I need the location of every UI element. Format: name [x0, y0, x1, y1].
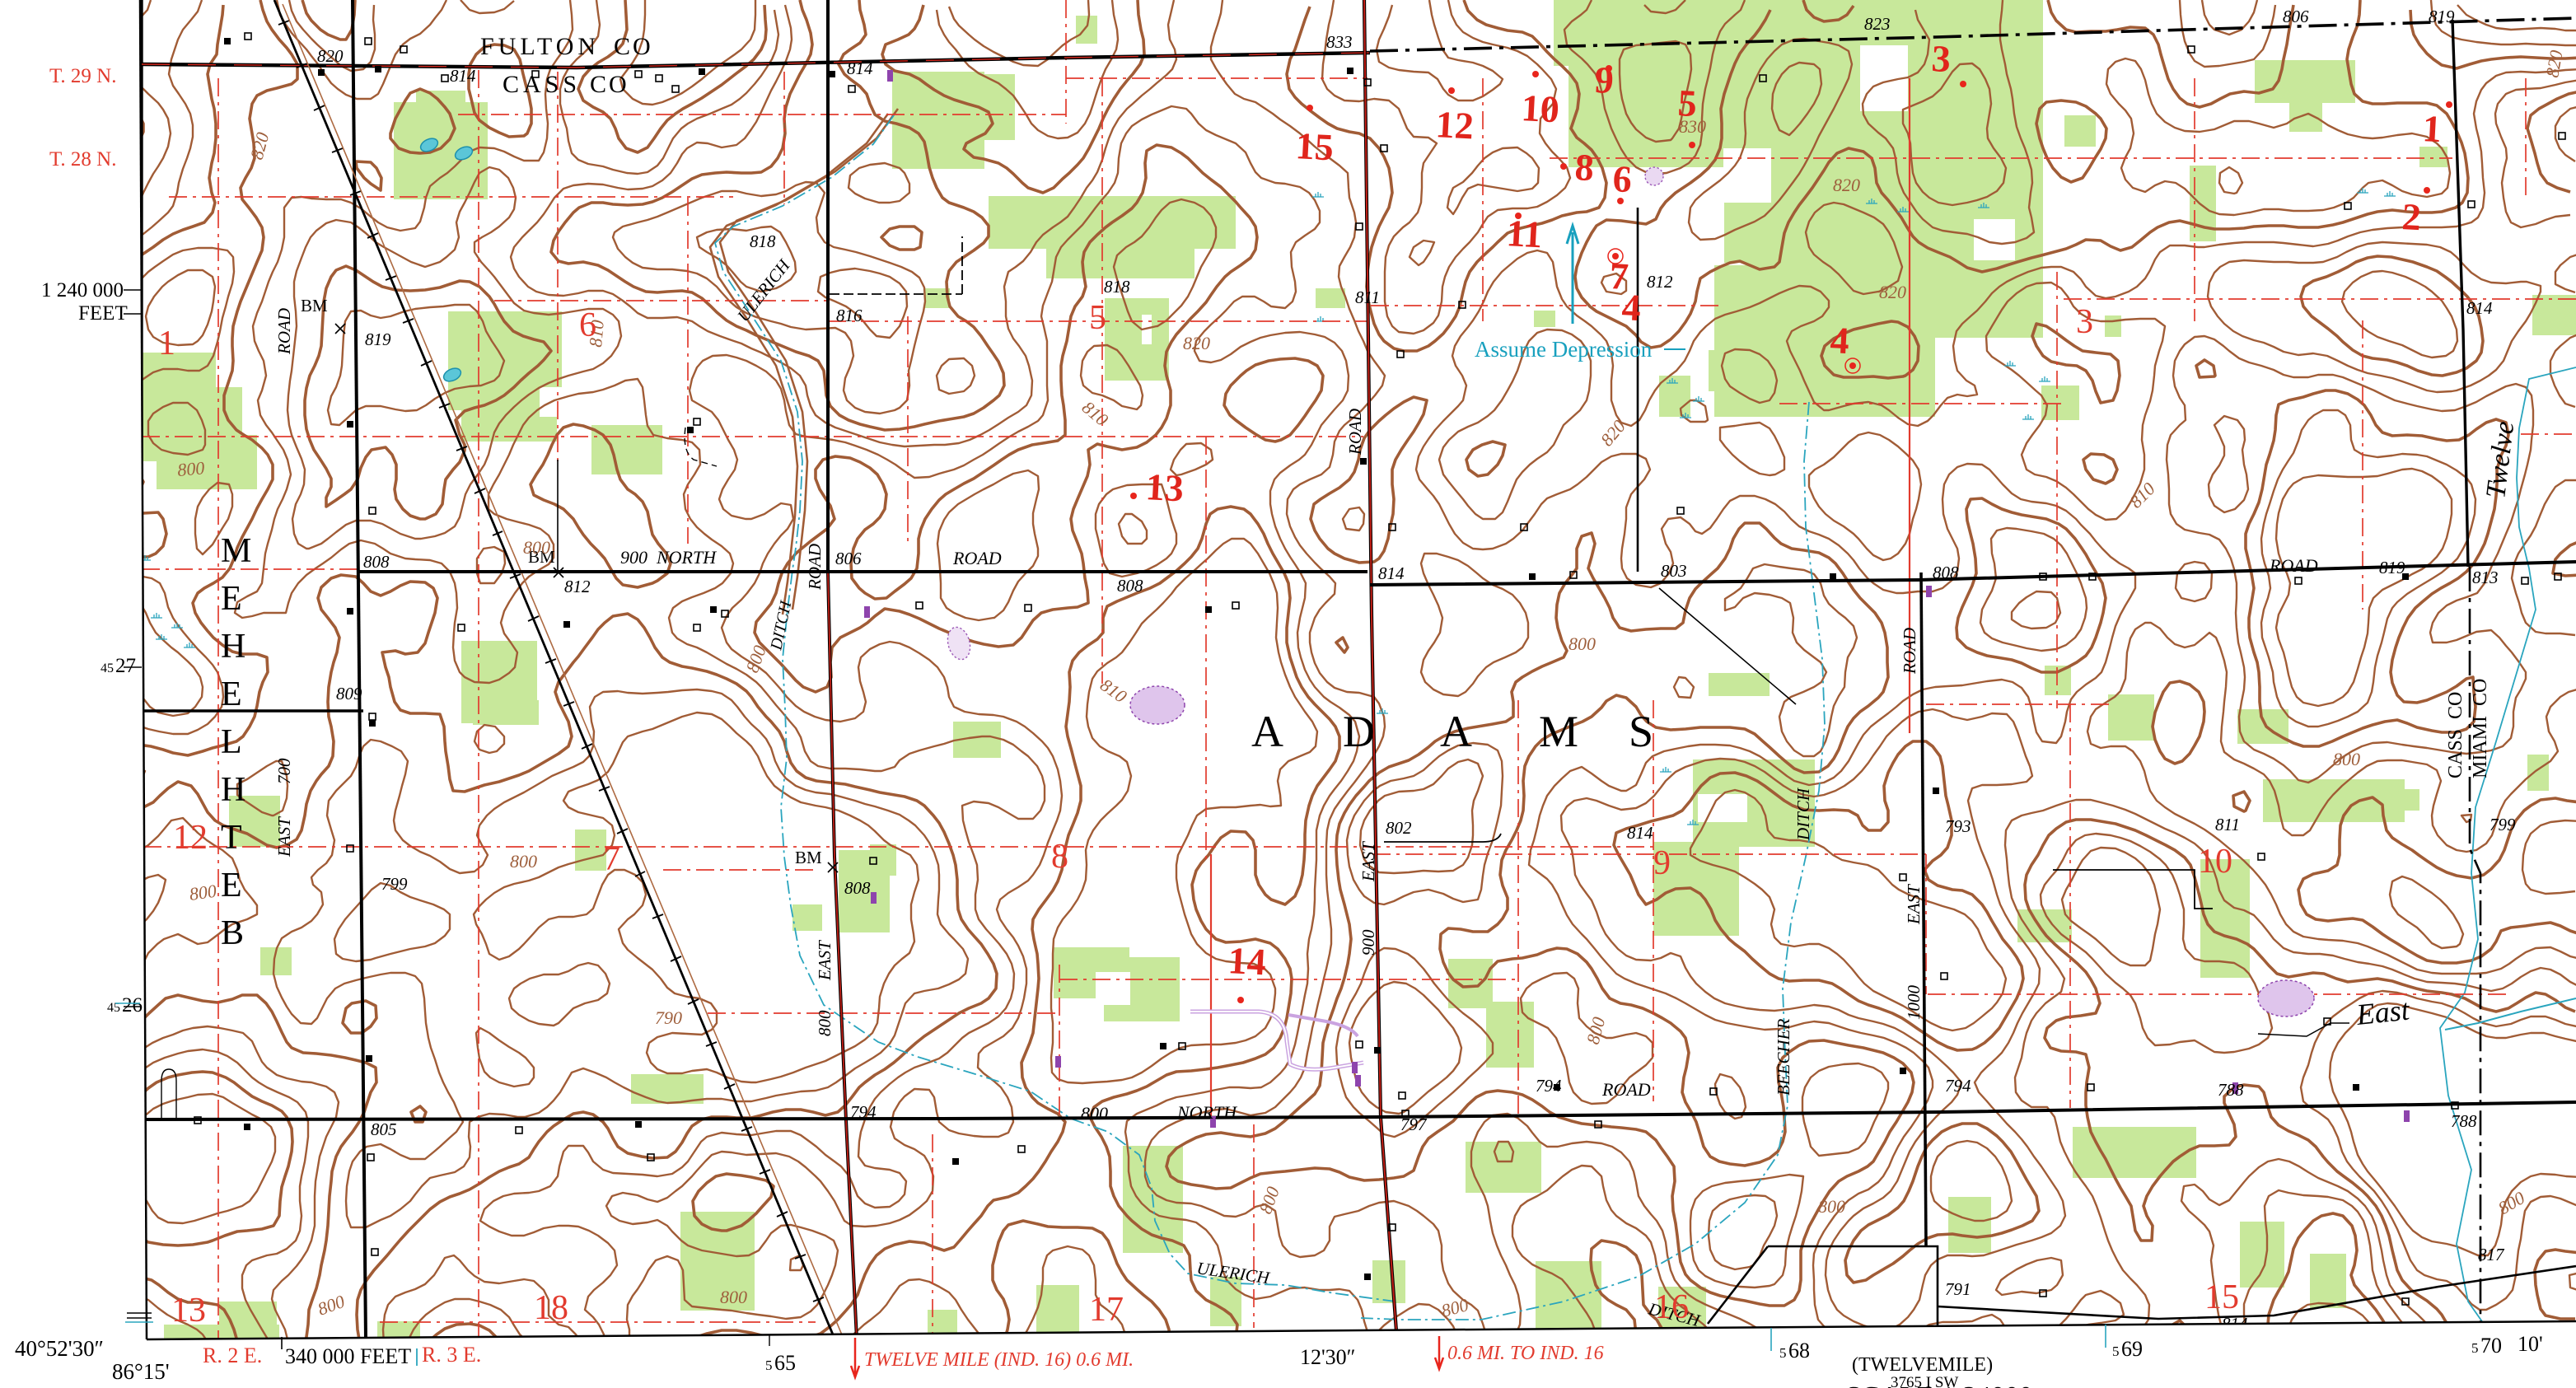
svg-text:ROAD: ROAD	[1345, 409, 1365, 456]
svg-text:806: 806	[835, 549, 862, 568]
svg-text:18: 18	[534, 1289, 568, 1327]
svg-text:819: 819	[2429, 7, 2455, 26]
svg-text:811: 811	[2215, 815, 2240, 834]
svg-text:799: 799	[2490, 815, 2516, 834]
svg-text:BEECHER: BEECHER	[1774, 1019, 1793, 1096]
svg-text:5: 5	[765, 1358, 773, 1373]
svg-text:ROAD: ROAD	[2269, 555, 2318, 576]
svg-text:9: 9	[1653, 844, 1671, 882]
svg-text:S: S	[1629, 707, 1653, 756]
svg-text:ROAD: ROAD	[274, 308, 294, 355]
svg-text:812: 812	[1647, 272, 1673, 292]
svg-text:NORTH: NORTH	[1176, 1102, 1237, 1123]
svg-text:12: 12	[1434, 103, 1475, 147]
svg-text:FEET: FEET	[78, 302, 128, 325]
svg-text:794: 794	[850, 1102, 877, 1122]
svg-text:MIAMI CO: MIAMI CO	[2470, 679, 2491, 778]
svg-text:809: 809	[336, 684, 362, 703]
svg-text:808: 808	[844, 878, 871, 898]
svg-text:814: 814	[847, 58, 873, 78]
svg-text:45: 45	[101, 661, 114, 675]
svg-text:13: 13	[171, 1292, 206, 1330]
svg-text:ROAD: ROAD	[1601, 1079, 1651, 1100]
svg-text:A: A	[1251, 707, 1283, 756]
svg-text:823: 823	[1864, 14, 1891, 34]
svg-text:816: 816	[836, 306, 863, 325]
svg-text:820: 820	[1879, 282, 1906, 302]
svg-text:813: 813	[2472, 568, 2499, 587]
svg-text:4: 4	[1829, 319, 1850, 362]
svg-text:ROAD: ROAD	[952, 548, 1002, 568]
svg-text:900 NORTH: 900 NORTH	[620, 547, 717, 568]
svg-text:833: 833	[1326, 32, 1353, 52]
svg-text:CO: CO	[590, 71, 629, 98]
svg-text:EAST: EAST	[1904, 884, 1924, 925]
svg-text:800: 800	[188, 881, 217, 904]
svg-text:5: 5	[2471, 1340, 2479, 1356]
svg-text:69: 69	[2121, 1337, 2143, 1361]
svg-text:820: 820	[1833, 175, 1860, 195]
svg-text:4: 4	[1620, 286, 1642, 329]
svg-text:1: 1	[2421, 107, 2443, 150]
svg-text:806: 806	[2283, 7, 2309, 26]
svg-text:900: 900	[1358, 929, 1378, 956]
svg-text:800: 800	[1081, 1103, 1108, 1124]
svg-text:5: 5	[1779, 1345, 1787, 1361]
svg-text:814: 814	[1627, 823, 1653, 843]
svg-text:802: 802	[1386, 818, 1412, 838]
svg-text:40°52'30″: 40°52'30″	[15, 1336, 104, 1361]
svg-text:T. 29 N.: T. 29 N.	[49, 65, 116, 87]
svg-text:800: 800	[720, 1287, 747, 1307]
svg-text:803: 803	[1661, 561, 1687, 581]
svg-text:11: 11	[1505, 212, 1543, 255]
svg-text:E: E	[221, 580, 242, 618]
svg-text:86°15': 86°15'	[112, 1359, 170, 1384]
svg-text:808: 808	[363, 552, 390, 572]
svg-text:812: 812	[564, 577, 591, 596]
svg-text:800: 800	[176, 457, 205, 480]
svg-text:FULTON: FULTON	[480, 33, 600, 60]
svg-text:814: 814	[2466, 298, 2493, 318]
svg-text:15: 15	[2204, 1278, 2239, 1316]
svg-text:814: 814	[1378, 563, 1405, 583]
svg-text:814: 814	[450, 66, 476, 86]
svg-text:(TWELVEMILE): (TWELVEMILE)	[1852, 1354, 1993, 1376]
svg-text:818: 818	[1104, 277, 1130, 297]
svg-text:65: 65	[774, 1351, 796, 1375]
svg-text:B: B	[221, 914, 244, 952]
svg-text:H: H	[221, 628, 245, 666]
svg-text:799: 799	[381, 874, 408, 894]
svg-text:ROAD: ROAD	[805, 544, 825, 591]
svg-text:27: 27	[115, 655, 136, 677]
svg-text:1: 1	[158, 325, 175, 362]
svg-text:340 000 FEET: 340 000 FEET	[285, 1344, 411, 1368]
svg-text:805: 805	[371, 1119, 397, 1139]
svg-text:EAST: EAST	[815, 940, 835, 981]
svg-text:12'30″: 12'30″	[1300, 1345, 1356, 1369]
svg-text:T: T	[221, 819, 242, 857]
svg-text:E: E	[221, 867, 242, 904]
svg-text:8: 8	[1051, 838, 1068, 876]
svg-text:6: 6	[1611, 157, 1633, 200]
svg-text:0.6 MI. TO IND. 16: 0.6 MI. TO IND. 16	[1447, 1343, 1604, 1364]
svg-text:SCALE 1:24000: SCALE 1:24000	[1845, 1381, 2033, 1388]
svg-text:TWELVE MILE (IND. 16) 0.6 MI.: TWELVE MILE (IND. 16) 0.6 MI.	[864, 1349, 1134, 1371]
svg-text:10: 10	[1520, 86, 1560, 130]
svg-text:ROAD: ROAD	[1900, 628, 1919, 675]
svg-text:68: 68	[1788, 1339, 1810, 1362]
svg-text:M: M	[221, 532, 251, 570]
svg-text:12: 12	[173, 819, 208, 857]
svg-text:8: 8	[1573, 146, 1595, 189]
svg-text:3: 3	[1930, 37, 1952, 80]
svg-text:794: 794	[1536, 1076, 1562, 1096]
svg-text:800: 800	[1818, 1196, 1845, 1217]
svg-text:788: 788	[2451, 1111, 2477, 1131]
svg-text:15: 15	[1294, 124, 1335, 168]
svg-text:791: 791	[1945, 1279, 1971, 1299]
svg-text:6: 6	[579, 306, 596, 344]
svg-text:EAST: EAST	[1358, 841, 1378, 882]
svg-text:A: A	[1440, 707, 1472, 756]
svg-text:808: 808	[1117, 576, 1143, 596]
svg-text:14: 14	[1227, 939, 1267, 983]
svg-text:1 240 000: 1 240 000	[41, 279, 124, 301]
svg-text:800: 800	[2333, 749, 2360, 769]
svg-text:800: 800	[815, 1010, 835, 1036]
svg-text:800: 800	[510, 851, 537, 872]
svg-text:820: 820	[1183, 333, 1210, 353]
svg-text:16: 16	[1654, 1288, 1689, 1326]
svg-text:793: 793	[1945, 816, 1971, 836]
svg-text:794: 794	[1945, 1076, 1971, 1096]
svg-text:5: 5	[2112, 1344, 2120, 1359]
svg-text:CASS: CASS	[503, 71, 581, 98]
svg-text:L: L	[221, 723, 242, 761]
svg-text:5: 5	[1089, 299, 1106, 337]
svg-text:East: East	[2354, 993, 2412, 1031]
svg-text:7: 7	[603, 840, 620, 878]
svg-text:26: 26	[122, 994, 143, 1016]
svg-text:EAST: EAST	[274, 816, 294, 858]
svg-text:M: M	[1539, 707, 1578, 756]
svg-text:10': 10'	[2518, 1332, 2543, 1356]
svg-text:800: 800	[1569, 633, 1596, 654]
svg-text:R. 3 E.: R. 3 E.	[422, 1343, 481, 1367]
svg-text:3: 3	[2076, 303, 2093, 341]
svg-text:819: 819	[2379, 558, 2405, 577]
svg-text:CO: CO	[614, 33, 653, 60]
svg-text:E: E	[221, 675, 242, 713]
svg-text:808: 808	[1933, 563, 1959, 582]
svg-text:818: 818	[750, 231, 776, 251]
svg-text:13: 13	[1144, 465, 1185, 509]
svg-text:788: 788	[2218, 1080, 2244, 1100]
svg-text:820: 820	[317, 46, 344, 66]
svg-text:10: 10	[2198, 843, 2232, 881]
svg-text:BM: BM	[795, 848, 822, 867]
svg-text:Assume Depression: Assume Depression	[1475, 337, 1653, 362]
svg-text:70: 70	[2480, 1334, 2502, 1358]
svg-text:797: 797	[1400, 1115, 1428, 1134]
svg-text:9: 9	[1593, 58, 1615, 101]
svg-text:700: 700	[274, 758, 294, 784]
svg-text:17: 17	[1089, 1291, 1124, 1329]
svg-text:811: 811	[1355, 287, 1380, 307]
svg-text:817: 817	[2478, 1245, 2505, 1264]
svg-text:819: 819	[365, 329, 391, 349]
svg-text:CASS CO: CASS CO	[2445, 692, 2466, 778]
svg-text:5: 5	[1676, 82, 1698, 124]
svg-text:2: 2	[2401, 195, 2422, 238]
svg-text:BM: BM	[301, 296, 328, 315]
svg-text:T. 28 N.: T. 28 N.	[49, 148, 116, 171]
svg-text:DITCH: DITCH	[1793, 787, 1813, 841]
svg-text:790: 790	[655, 1007, 682, 1028]
svg-text:1000: 1000	[1904, 985, 1924, 1021]
svg-text:H: H	[221, 771, 245, 809]
svg-text:R. 2 E.: R. 2 E.	[203, 1344, 262, 1367]
svg-text:800: 800	[523, 537, 550, 558]
svg-text:D: D	[1343, 707, 1375, 756]
